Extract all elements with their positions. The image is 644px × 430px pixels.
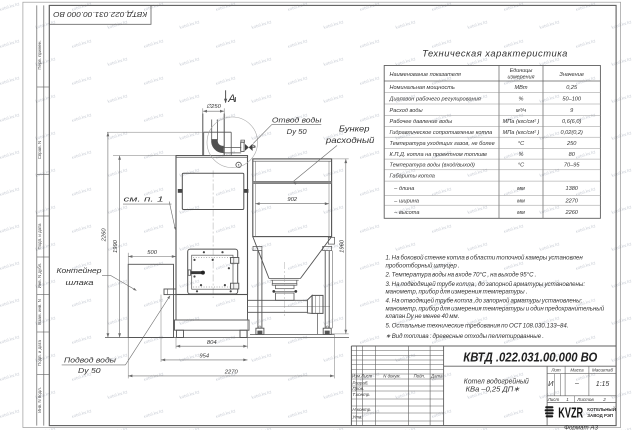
svg-text:Расход воды: Расход воды <box>390 108 423 114</box>
svg-text:Т.контр.: Т.контр. <box>352 392 370 397</box>
svg-text:1. На боковой стенке котла: 1. На боковой стенке котла в области топ… <box>386 254 584 261</box>
svg-text:∅250: ∅250 <box>206 103 221 110</box>
svg-text:измерения: измерения <box>508 75 535 81</box>
svg-text:Подп. и дата: Подп. и дата <box>37 223 42 249</box>
svg-text:Бункер: Бункер <box>339 125 370 134</box>
svg-text:клапан Dу не менее 40 мм.: клапан Dу не менее 40 мм. <box>386 313 460 320</box>
svg-text:ЗАВОД РЭП: ЗАВОД РЭП <box>587 413 613 418</box>
svg-text:Контейнер: Контейнер <box>57 266 102 275</box>
svg-text:КОТЕЛЬНЫЙ: КОТЕЛЬНЫЙ <box>587 407 616 412</box>
svg-text:Габариты котла: Габариты котла <box>390 173 435 179</box>
svg-text:Листов: Листов <box>576 397 594 402</box>
svg-text:%: % <box>519 152 524 158</box>
svg-text:2270: 2270 <box>224 370 239 376</box>
svg-text:Значение: Значение <box>559 72 584 78</box>
svg-text:0,02(0,2): 0,02(0,2) <box>561 130 584 136</box>
svg-text:1990: 1990 <box>113 239 119 253</box>
svg-text:Подп. и дата: Подп. и дата <box>37 340 42 366</box>
svg-text:КВа –0,25 ДП∗: КВа –0,25 ДП∗ <box>466 385 521 394</box>
svg-text:мм: мм <box>517 198 525 204</box>
svg-text:5. Остальные технические тр: 5. Остальные технические требования по О… <box>386 322 569 329</box>
svg-text:Инв. N подл.: Инв. N подл. <box>37 387 42 413</box>
svg-text:0,6(6,0): 0,6(6,0) <box>562 119 581 125</box>
svg-text:Масса: Масса <box>570 368 584 373</box>
svg-text:м³/ч: м³/ч <box>516 108 526 114</box>
svg-text:2260: 2260 <box>564 210 578 216</box>
svg-text:2. Температура воды на вхо: 2. Температура воды на входе 70°С , на в… <box>385 272 537 279</box>
svg-text:50–100: 50–100 <box>562 96 582 102</box>
svg-text:500: 500 <box>147 250 157 256</box>
svg-text:A: A <box>227 93 235 105</box>
svg-text:– высота: – высота <box>390 210 420 216</box>
svg-text:°С: °С <box>518 162 525 168</box>
svg-text:70–95: 70–95 <box>564 162 580 168</box>
svg-text:4. На отводящей трубе котл: 4. На отводящей трубе котла ,до запорной… <box>386 297 583 304</box>
svg-text:804: 804 <box>207 340 217 346</box>
svg-text:мм: мм <box>517 210 525 216</box>
svg-text:пробоотборный штуцер .: пробоотборный штуцер . <box>386 263 460 270</box>
svg-text:Взам. инв. N: Взам. инв. N <box>37 299 42 325</box>
svg-text:Масштаб: Масштаб <box>592 368 613 373</box>
svg-text:Номинальная мощность: Номинальная мощность <box>390 85 455 91</box>
svg-text:80: 80 <box>569 152 576 158</box>
svg-text:К.П.Д. котла на проектном топл: К.П.Д. котла на проектном топливе <box>390 152 488 158</box>
svg-text:Разраб.: Разраб. <box>352 380 368 385</box>
svg-text:расходный: расходный <box>325 136 376 145</box>
svg-text:Подвод воды: Подвод воды <box>64 356 117 365</box>
svg-text:∗ Вид топлива : древесные: ∗ Вид топлива : древесные отходы пеллети… <box>386 333 544 340</box>
svg-text:Гидравлическое сопротивление к: Гидравлическое сопротивление котла <box>390 130 493 136</box>
svg-text:Изм.Лист: Изм.Лист <box>352 374 373 379</box>
svg-text:Наименование показателя: Наименование показателя <box>390 72 461 78</box>
svg-text:Перв. примен.: Перв. примен. <box>37 40 42 69</box>
svg-text:мм: мм <box>517 186 525 192</box>
svg-text:Dy 50: Dy 50 <box>287 127 308 136</box>
svg-text:1:15: 1:15 <box>596 381 610 388</box>
svg-text:°С: °С <box>518 141 525 147</box>
svg-text:Отвод воды: Отвод воды <box>272 115 322 124</box>
svg-text:манометр, прибор для измере: манометр, прибор для измерения температу… <box>386 306 605 313</box>
svg-text:250: 250 <box>566 141 577 147</box>
svg-text:МВт: МВт <box>514 85 527 91</box>
svg-text:см. п. 1: см. п. 1 <box>124 194 164 203</box>
svg-text:1380: 1380 <box>565 186 578 192</box>
svg-text:Единицы: Единицы <box>510 68 533 74</box>
svg-text:N докум.: N докум. <box>383 374 400 379</box>
svg-text:КВТД.022.031.00.000 ВО: КВТД.022.031.00.000 ВО <box>53 10 148 17</box>
svg-text:МПа (кгс/см² ): МПа (кгс/см² ) <box>503 119 540 125</box>
svg-text:Рабочее давление воды: Рабочее давление воды <box>390 119 453 125</box>
svg-text:Н.контр.: Н.контр. <box>352 407 371 412</box>
svg-text:2: 2 <box>602 397 606 402</box>
svg-text:Подп.: Подп. <box>414 374 425 379</box>
svg-text:Пров.: Пров. <box>352 386 364 391</box>
svg-text:902: 902 <box>287 197 297 203</box>
svg-text:шлака: шлака <box>66 278 94 287</box>
svg-text:%: % <box>519 96 524 102</box>
svg-text:1960: 1960 <box>339 239 345 253</box>
svg-text:– ширина: – ширина <box>390 198 420 204</box>
svg-text:2260: 2260 <box>101 228 107 243</box>
svg-text:Формат А3: Формат А3 <box>564 424 598 430</box>
svg-text:– длина: – длина <box>390 186 415 192</box>
svg-text:Dy 50: Dy 50 <box>78 366 102 375</box>
svg-text:Справ. N: Справ. N <box>37 141 42 159</box>
svg-text:Лист: Лист <box>547 397 560 402</box>
svg-text:Инв. N дубл.: Инв. N дубл. <box>37 263 42 289</box>
svg-text:Дата: Дата <box>430 374 443 379</box>
svg-text:Диапазон рабочего регулировани: Диапазон рабочего регулирования <box>389 96 481 102</box>
svg-text:Температура воды (вход/выход): Температура воды (вход/выход) <box>390 162 476 168</box>
svg-text:3. На подводящей трубе кот: 3. На подводящей трубе котла , до запорн… <box>386 281 586 288</box>
svg-text:Утв.: Утв. <box>352 415 362 420</box>
svg-text:2270: 2270 <box>564 198 578 204</box>
svg-text:0,25: 0,25 <box>566 85 578 91</box>
svg-text:9: 9 <box>570 108 573 114</box>
svg-text:манометр, прибор для измере: манометр, прибор для измерения температу… <box>386 288 528 295</box>
svg-text:МПа (кгс/см² ): МПа (кгс/см² ) <box>503 130 540 136</box>
svg-text:KVZR: KVZR <box>558 405 583 422</box>
svg-text:–: – <box>574 380 579 387</box>
svg-text:КВТД .022.031.00.000 ВО: КВТД .022.031.00.000 ВО <box>463 350 597 364</box>
svg-text:Температура уходящих газов, не: Температура уходящих газов, не более <box>390 141 495 147</box>
svg-text:Техническая характеристика: Техническая характеристика <box>422 48 568 59</box>
svg-text:И: И <box>548 379 554 388</box>
svg-text:954: 954 <box>199 354 209 360</box>
svg-text:Лит: Лит <box>550 368 561 373</box>
